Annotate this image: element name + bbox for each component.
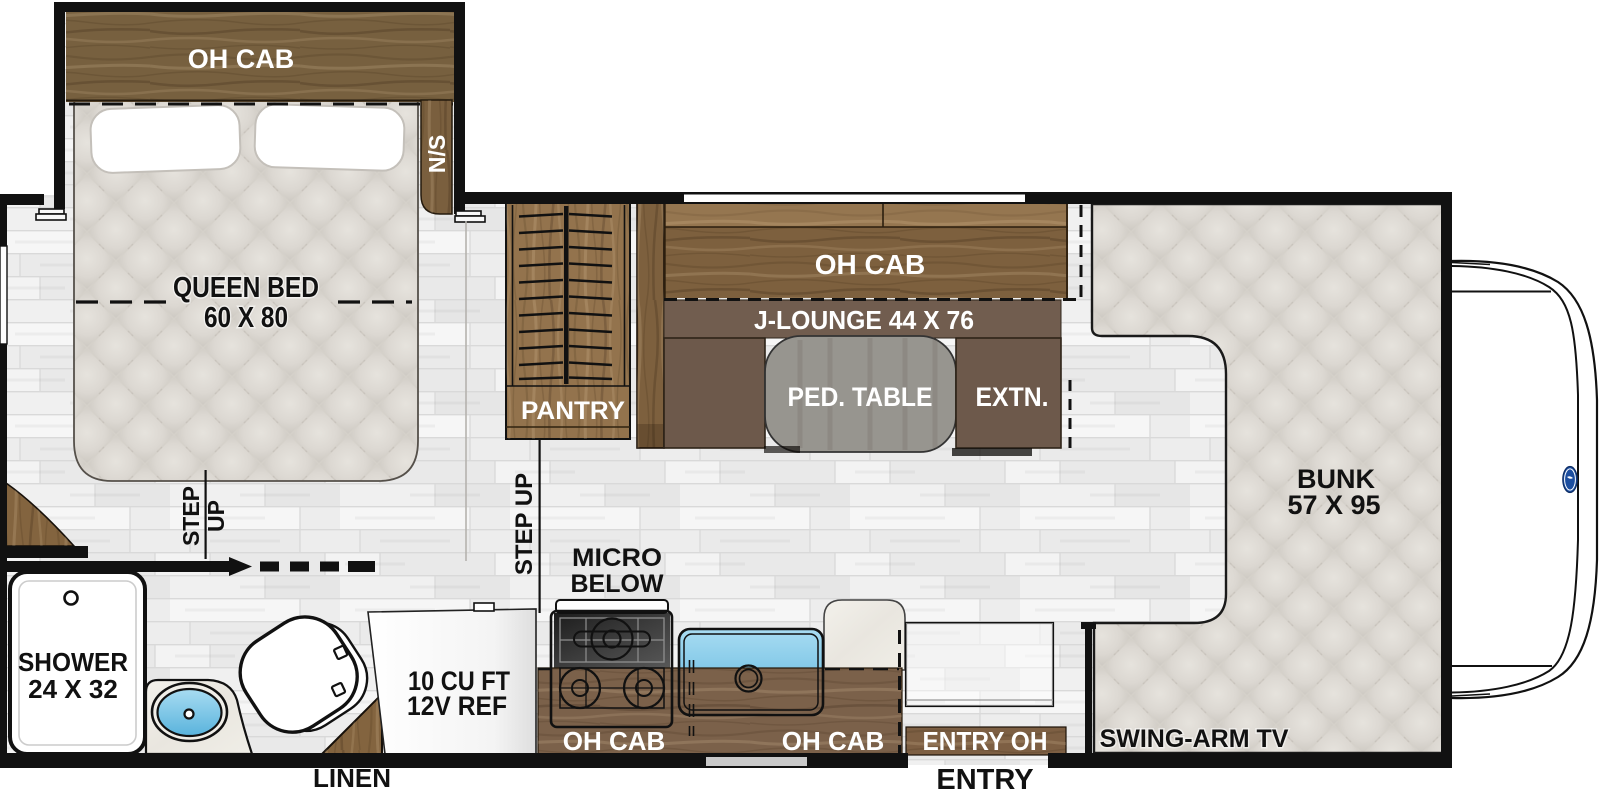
svg-text:STEP UP: STEP UP bbox=[511, 473, 538, 575]
svg-text:OH CAB: OH CAB bbox=[815, 249, 925, 280]
svg-text:60 X 80: 60 X 80 bbox=[204, 302, 288, 334]
svg-text:BELOW: BELOW bbox=[570, 570, 663, 598]
svg-text:OH CAB: OH CAB bbox=[563, 726, 666, 756]
svg-text:MICRO: MICRO bbox=[572, 544, 662, 572]
svg-text:UP: UP bbox=[203, 500, 229, 532]
svg-text:ENTRY OH: ENTRY OH bbox=[923, 726, 1048, 756]
svg-text:OH CAB: OH CAB bbox=[782, 726, 885, 756]
svg-text:12V REF: 12V REF bbox=[407, 691, 507, 721]
svg-text:PANTRY: PANTRY bbox=[521, 397, 625, 425]
svg-text:SWING-ARM TV: SWING-ARM TV bbox=[1100, 725, 1289, 753]
svg-text:J-LOUNGE 44 X 76: J-LOUNGE 44 X 76 bbox=[754, 305, 974, 335]
svg-text:24 X 32: 24 X 32 bbox=[28, 674, 118, 704]
svg-text:STEP: STEP bbox=[178, 486, 204, 546]
svg-text:N/S: N/S bbox=[424, 135, 450, 173]
svg-text:PED. TABLE: PED. TABLE bbox=[788, 382, 933, 412]
svg-text:QUEEN BED: QUEEN BED bbox=[173, 272, 319, 304]
svg-text:57 X 95: 57 X 95 bbox=[1287, 490, 1380, 520]
svg-text:ENTRY: ENTRY bbox=[936, 764, 1033, 796]
svg-text:EXTN.: EXTN. bbox=[976, 382, 1049, 412]
svg-text:SHOWER: SHOWER bbox=[18, 647, 128, 677]
svg-text:OH CAB: OH CAB bbox=[188, 44, 295, 74]
